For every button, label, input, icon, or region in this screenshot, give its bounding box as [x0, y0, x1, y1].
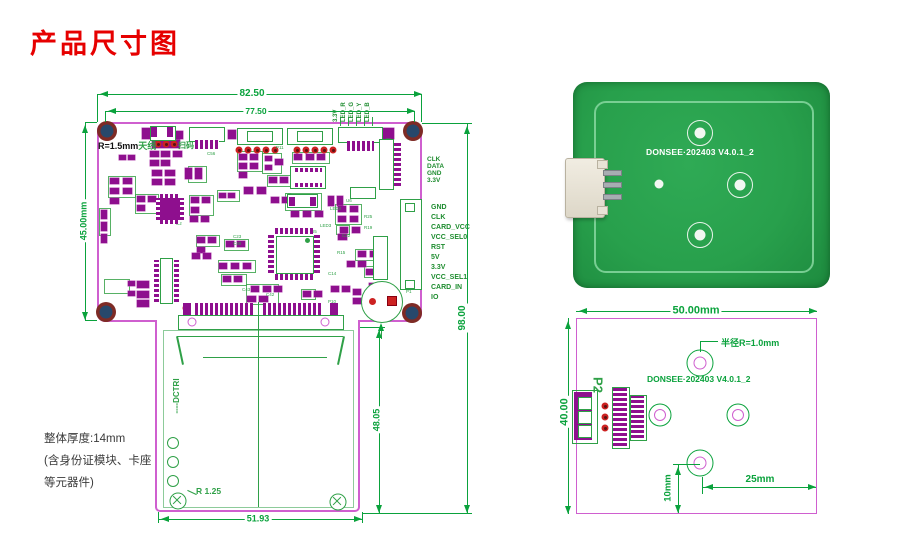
mcu-qfp-chip	[268, 228, 320, 280]
qfp-chip-small	[156, 194, 184, 224]
soic-chip-u4	[154, 258, 179, 304]
smd-component	[165, 179, 175, 185]
mounting-hole	[403, 121, 423, 141]
smd-component	[291, 211, 299, 217]
led-label: LED_B	[365, 102, 371, 122]
dim-hole-offset-v: 10mm	[663, 472, 673, 503]
smd-component	[239, 163, 247, 169]
smd-component	[219, 193, 226, 198]
pin-label: 5V	[431, 253, 470, 263]
card-mount-hole	[170, 493, 187, 510]
smd-component	[161, 151, 170, 157]
dim-silkscreen-text: DONSEE·202403 V4.0.1_2	[647, 374, 750, 384]
led-label: LED_Y	[357, 103, 363, 122]
smd-component	[191, 207, 199, 213]
fpc-connector-p1	[400, 199, 422, 290]
smd-component	[128, 281, 135, 286]
solder-pad	[236, 147, 243, 154]
fpc-pads	[394, 141, 401, 186]
solder-pad	[254, 147, 261, 154]
card-mount-hole	[330, 494, 347, 511]
smd-component	[228, 193, 235, 198]
smd-component	[195, 168, 202, 179]
smd-component	[317, 154, 325, 160]
dim-hole-offset-h: 25mm	[744, 475, 777, 485]
smd-component	[247, 296, 256, 302]
smd-component	[208, 237, 216, 243]
smd-component	[306, 154, 314, 160]
smd-component	[152, 179, 162, 185]
component-ref: C56	[207, 152, 215, 157]
smd-component	[137, 281, 149, 288]
connector-pin	[603, 170, 622, 176]
component-ref: R15	[337, 251, 345, 256]
smd-component	[338, 216, 346, 222]
led-label: LED_R	[341, 102, 347, 122]
solder-pad	[171, 141, 178, 148]
dim-card-height: 48.05	[373, 407, 382, 434]
buzzer	[361, 281, 403, 323]
smd-component	[274, 286, 282, 292]
smd-component	[280, 177, 288, 183]
smd-component	[228, 130, 236, 139]
smd-component	[161, 160, 170, 166]
pin-label: 3.3V	[431, 263, 470, 273]
smd-component	[173, 151, 182, 157]
pin-label: 3.3V	[427, 177, 444, 184]
smd-component	[342, 286, 350, 292]
smd-component	[223, 276, 231, 282]
pin-label: GND	[431, 203, 470, 213]
smd-component	[202, 197, 210, 203]
smd-component	[294, 154, 302, 160]
solder-pad	[312, 147, 319, 154]
smd-component	[353, 289, 361, 295]
pin-label: CARD_IN	[431, 283, 470, 293]
dim-height-upper: 45.00mm	[80, 200, 89, 243]
smd-component	[150, 160, 159, 166]
mounting-hole	[402, 303, 422, 323]
smd-component	[119, 155, 126, 160]
dim-antenna-width: 50.00mm	[670, 306, 721, 317]
silkscreen-box	[104, 279, 130, 294]
pin-label: CLK	[431, 213, 470, 223]
page-title: 产品尺寸图	[30, 22, 180, 61]
solder-pad	[263, 147, 270, 154]
dim-card-width: 51.93	[245, 515, 272, 524]
solder-pad	[303, 147, 310, 154]
pin-label: IO	[431, 293, 470, 303]
pin-label: DATA	[427, 163, 444, 170]
smd-component	[331, 286, 339, 292]
smd-component	[337, 196, 343, 206]
header-p2	[379, 139, 394, 190]
smd-component	[234, 276, 242, 282]
smd-component	[137, 291, 149, 298]
thickness-note: 整体厚度:14mm (含身份证模块、卡座 等元器件)	[44, 428, 151, 494]
smd-component	[185, 168, 192, 179]
connector-pin	[603, 182, 622, 188]
smd-component	[250, 163, 258, 169]
smd-component	[347, 261, 355, 267]
smd-component	[101, 234, 107, 243]
pin-label: GND	[427, 170, 444, 177]
dim-width-outer: 82.50	[237, 89, 266, 99]
component-ref: LED2	[330, 207, 341, 212]
smd-component	[137, 300, 149, 307]
smd-component	[192, 253, 200, 259]
component-ref: C23	[233, 235, 241, 240]
component-ref: R19	[364, 226, 372, 231]
smd-component	[137, 196, 145, 202]
smd-component	[110, 178, 119, 184]
smd-component	[191, 197, 199, 203]
smd-component	[350, 206, 358, 212]
component-ref: R25	[364, 215, 372, 220]
connector-pins	[195, 140, 219, 149]
corner-radius-label: R=1.5mm天线	[98, 139, 156, 152]
product-dimension-sheet: 产品尺寸图 C56P11U3U2Y2U6LED2LED3R25R19C22U5R…	[0, 0, 900, 555]
mounting-hole	[96, 302, 116, 322]
dim-width-inner: 77.50	[243, 107, 268, 116]
smd-component	[190, 216, 198, 222]
smd-component	[358, 251, 366, 257]
smd-component	[231, 263, 239, 269]
header-p3	[373, 236, 388, 280]
solder-pad	[163, 141, 170, 148]
smd-component	[128, 155, 135, 160]
component-ref: C42	[266, 293, 274, 298]
component-ref: C22	[342, 234, 350, 239]
smd-component	[265, 165, 272, 170]
solder-pad	[321, 147, 328, 154]
smd-component	[251, 286, 259, 292]
component-ref: LED3	[320, 224, 331, 229]
smd-component	[110, 198, 119, 204]
smd-component	[203, 253, 211, 259]
hole-radius-label: R 1.25	[196, 486, 221, 496]
pin-label: VCC_SEL1	[431, 273, 470, 283]
smd-component	[271, 197, 279, 203]
led-connector-pins	[347, 141, 374, 151]
component-ref: P11	[276, 146, 284, 151]
photo-silkscreen-text: DONSEE·202403 V4.0.1_2	[646, 147, 754, 157]
pin-labels-lower: GNDCLKCARD_VCCVCC_SEL0RST5V3.3VVCC_SEL1C…	[431, 203, 470, 303]
smd-component	[110, 188, 119, 194]
smd-component	[243, 263, 251, 269]
connector-pin	[603, 194, 622, 200]
smd-component	[148, 196, 156, 202]
smd-component	[201, 216, 209, 222]
smd-component	[123, 188, 132, 194]
ffc-pins-right	[263, 303, 323, 315]
dim-height-total: 98.00	[458, 303, 468, 332]
ic-u6	[350, 187, 376, 199]
dim-antenna-height: 40.00	[560, 396, 571, 428]
smd-component	[197, 237, 205, 243]
component-ref: P1	[406, 290, 412, 295]
smd-component	[269, 177, 277, 183]
smd-component	[275, 159, 283, 165]
smd-component	[314, 291, 322, 297]
smd-component	[257, 187, 266, 194]
smd-component	[250, 154, 258, 160]
smd-component	[353, 298, 361, 304]
smd-component	[303, 211, 311, 217]
scan-label: 扫码	[178, 140, 194, 151]
smd-component	[244, 187, 253, 194]
card-slot-label: ----DCTRI	[173, 376, 181, 415]
ic-chip-u3	[290, 166, 326, 189]
smd-component	[101, 210, 107, 219]
smd-component	[239, 154, 247, 160]
crystal-y2	[287, 194, 318, 208]
solder-pad	[330, 147, 337, 154]
solder-pad	[294, 147, 301, 154]
smd-component	[352, 227, 360, 233]
radius-note: 半径R=1.0mm	[721, 336, 779, 349]
pin-label: RST	[431, 243, 470, 253]
smd-component	[350, 216, 358, 222]
smd-component	[358, 261, 366, 267]
smd-component	[239, 172, 247, 178]
pin-label: CLK	[427, 156, 444, 163]
ffc-pins-left	[195, 303, 253, 315]
component-ref: C43	[242, 288, 250, 293]
pin-labels-upper: CLKDATAGND3.3V	[427, 156, 444, 184]
smd-component	[137, 205, 145, 211]
smd-component	[128, 291, 135, 296]
smd-component	[152, 170, 162, 176]
solder-pad	[245, 147, 252, 154]
smd-component	[315, 211, 323, 217]
smd-component	[219, 263, 227, 269]
smd-component	[303, 291, 311, 297]
smd-component	[265, 156, 272, 161]
smd-component	[165, 170, 175, 176]
component-ref: C40	[233, 242, 241, 247]
mounting-hole	[97, 121, 117, 141]
smd-component	[123, 178, 132, 184]
component-ref: C14	[328, 272, 336, 277]
pin-label: VCC_SEL0	[431, 233, 470, 243]
ffc-connector-body	[178, 315, 344, 330]
smd-component	[328, 196, 334, 206]
component-ref: U6	[346, 199, 352, 204]
smd-component	[101, 222, 107, 231]
pin-label: CARD_VCC	[431, 223, 470, 233]
